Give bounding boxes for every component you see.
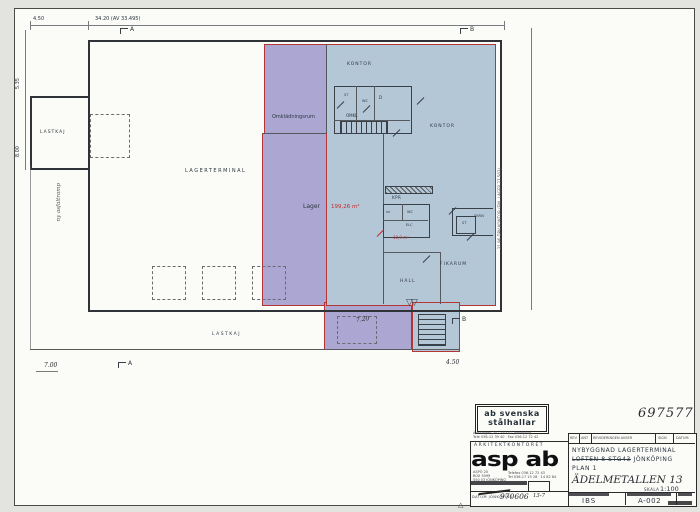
stamp-number: 697577 [638,406,694,421]
room-label-skriv: SKRIV [474,214,484,218]
drawing-id: A-002 [638,497,661,505]
handl-header-strip [569,493,609,496]
dim-line-right [531,28,532,310]
room-label-lager: Lager [303,203,320,210]
skriv-room [452,208,493,236]
project-title-1: NYBYGGNAD LAGERTERMINAL [572,447,676,454]
corner-strip [668,501,692,505]
dim-tick [504,21,505,30]
section-marker-b-bottom: B [462,316,466,323]
rev-col-line [591,433,592,443]
dim-tick [88,21,89,30]
room-label-st1: ST [344,93,348,97]
handlaggare-value: IBS [582,497,596,505]
rev-header-divider [568,443,695,444]
project-title-2: LOFTEN 8 STG43 JÖNKÖPING [572,456,673,463]
project-city: JÖNKÖPING [633,456,672,463]
room-label-st2: ST [462,221,466,225]
dim-left-lower: 8.00 [15,146,21,157]
asp-addr-2b: Tel 036-17 15 28 · 14 82 84 [508,475,556,479]
section-flag [120,28,128,34]
lager-area-note: 199,26 m² [331,204,360,210]
revision-triangle-icon: △ [458,501,463,509]
section-flag [460,28,468,34]
room-label-wc2: WC [407,210,413,214]
wc-divider-2 [374,86,375,120]
rev-col-avser: REVIDERINGEN AVSER [593,436,632,440]
rev-col-line [673,433,674,443]
scanned-drawing-sheet: ▽▽ LAGERTERMINAL LASTKAJ LASTKAJ Omklädn… [0,0,700,512]
room-label-lastkaj-left: LASTKAJ [40,130,66,135]
stalhallar-logo: ab svenska stålhallar [475,404,549,434]
section-marker-b-top: B [470,26,474,33]
locker-row [340,121,388,134]
room-label-omkladningsrum: Omklädningsrum [272,114,315,120]
rev-col-line [655,433,656,443]
logo-line1: ab svenska [478,409,546,418]
struck-property: LOFTEN 8 STG43 [572,456,631,463]
dim-top-left: 4.50 [33,16,44,22]
hatched-wall [385,186,433,194]
project-title-3: PLAN 1 [572,465,597,472]
rev-col-line [579,433,580,443]
rev-col-datum: DATUM [676,436,688,440]
room-label-kontor-top: KONTOR [347,62,372,67]
dashed-area [152,266,186,300]
room-label-wc1: WC [362,99,368,103]
dim-left-upper: 5.35 [15,78,21,89]
room-label-fikarum: FIKARUM [440,262,467,267]
section-marker-a-bottom: A [128,360,132,367]
room-label-hall: HALL [400,279,415,284]
ritningsnr-header-strip [627,493,671,496]
dim-bottom-left: 7.00 [44,362,57,369]
dashed-area [202,266,236,300]
section-flag [452,318,460,324]
tb-bottom-col [625,492,626,505]
dim-tick [30,21,31,30]
wall-omkl-kontor [326,44,327,133]
hk-wc-divider [402,204,403,220]
dim-right-note: 21.96 ÖPV KONTOR (ENL LAGER 27.563) [497,168,502,249]
room-label-lastkaj-bottom: LASTKAJ [212,332,241,337]
hall-wall-v [440,252,441,304]
room-label-kpr: KPR [392,195,401,200]
rev-col-sign: SIGN [658,436,667,440]
asp-logo: asp ab [471,447,558,471]
dim-line-left [25,30,26,170]
room-label-hk: HK [386,210,390,214]
ground-line [30,349,460,350]
dim-tick [36,371,58,372]
dashed-area [90,114,130,158]
rev-col-rev: REV [570,436,577,440]
room-label-d1: D [379,95,382,100]
dim-bottom-right: 4.50 [446,359,459,366]
logo-address-2: Tele 036-12 39 40 · Fax 036-12 72 42 [473,435,538,439]
dim-top-main: 34.20 (AV 33.495) [95,16,140,22]
section-marker-a-top: A [130,26,134,33]
stair [418,314,446,346]
datum-value: 970606 [500,492,529,501]
room-label-kontor-right: KONTOR [430,124,455,129]
area-note-red: 10,9 m² [393,235,409,240]
double-door-icon: ▽▽ [406,298,416,308]
elc-divider [383,220,428,221]
dashed-area [252,266,286,300]
wall-omkl-lager [262,133,326,134]
rev-col-ant: ANT [581,436,588,440]
check-number: 13-7 [533,493,545,499]
dim-line-top [30,25,505,26]
ramp-note: ny asfaltramp [56,183,62,221]
rev-header-strip [678,493,692,496]
ramp-edge-line [30,166,31,349]
room-label-omkl: OMKL [346,113,357,118]
room-label-elc: ELC [406,223,413,227]
logo-line2: stålhallar [478,418,546,427]
room-label-lagerterminal: LAGERTERMINAL [185,168,246,174]
section-flag [118,362,126,368]
hall-wall-h [383,252,440,253]
